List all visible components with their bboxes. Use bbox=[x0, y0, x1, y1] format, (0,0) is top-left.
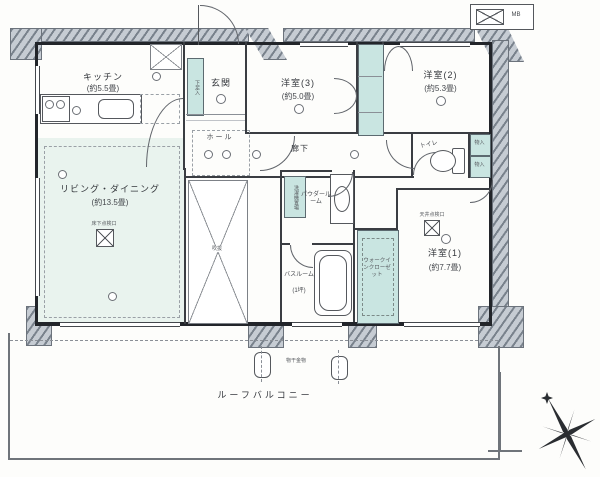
bath-label: バスルーム bbox=[284, 272, 314, 279]
lamp-entrance bbox=[216, 94, 226, 104]
stove-burner-2 bbox=[56, 100, 65, 109]
closet3-door-arc-2 bbox=[334, 96, 357, 114]
toilet-door-arc bbox=[413, 152, 436, 175]
western2-window bbox=[400, 42, 470, 47]
wall-living-right bbox=[184, 168, 186, 324]
floor-plan: MB キッチン (約5.5畳) リビング・ダイニング (約13.5畳) 床下点検… bbox=[0, 0, 600, 477]
ceiling-hatch-label: 天井点検口 bbox=[412, 212, 452, 218]
lamp-living-1 bbox=[108, 292, 117, 301]
washer-label: 洗濯機置場 bbox=[289, 180, 299, 214]
corridor-label: 廊下 bbox=[270, 143, 330, 154]
balcony-rail-bottom bbox=[8, 458, 500, 460]
floor-hatch-icon bbox=[96, 229, 114, 247]
closet3-door-arc-1 bbox=[334, 78, 357, 96]
western1-window bbox=[404, 322, 480, 327]
storage-a-label: 物入 bbox=[471, 140, 488, 146]
living-label: リビング・ダイニング bbox=[50, 182, 170, 195]
laundry-hook-2-line bbox=[338, 350, 339, 384]
compass-icon bbox=[535, 386, 597, 470]
balcony-boundary-dash bbox=[10, 340, 498, 341]
western3-window bbox=[300, 42, 348, 47]
laundry-hook-1-line bbox=[261, 346, 262, 382]
wall-powder-top bbox=[280, 170, 332, 172]
lamp-western1 bbox=[441, 234, 451, 244]
closet2-door-arc-1 bbox=[384, 46, 399, 71]
wall-bath-divider-b bbox=[312, 243, 355, 245]
floor-hatch-label: 床下点検口 bbox=[80, 221, 128, 227]
entrance-step-line bbox=[186, 114, 245, 115]
stove-burner-1 bbox=[45, 100, 54, 109]
lamp-living-2 bbox=[58, 170, 67, 179]
wall-kitchen-right bbox=[183, 42, 185, 170]
balcony-rail-left bbox=[8, 333, 10, 460]
boundary-marker-line bbox=[500, 372, 501, 452]
wall-powder-left bbox=[280, 170, 282, 322]
lamp-western3 bbox=[294, 104, 304, 114]
bath-size: (1坪) bbox=[284, 288, 314, 295]
western2-size: (約5.3畳) bbox=[398, 83, 483, 94]
lamp-corridor-2 bbox=[350, 150, 359, 159]
western3-size: (約5.0畳) bbox=[258, 91, 338, 102]
duct-shaft-icon bbox=[150, 44, 182, 70]
laundry-hook-2 bbox=[331, 356, 348, 380]
lamp-hall-1 bbox=[204, 150, 213, 159]
wic-label: ウォークインクローゼット bbox=[363, 258, 391, 279]
kitchen-label: キッチン bbox=[58, 70, 148, 83]
hall-label: ホール bbox=[196, 134, 244, 142]
lamp-corridor-1 bbox=[252, 150, 261, 159]
lamp-kitchen-1 bbox=[72, 106, 81, 115]
wall-bath-divider-a bbox=[280, 243, 290, 245]
kitchen-sink bbox=[98, 99, 134, 119]
entry-door-leaf bbox=[198, 5, 199, 45]
meter-box-label: MB bbox=[505, 12, 527, 19]
western2-label: 洋室(2) bbox=[398, 68, 483, 81]
living-side-window bbox=[35, 178, 40, 296]
meter-box-icon bbox=[476, 9, 504, 25]
western1-size: (約7.7畳) bbox=[405, 262, 485, 273]
closet-strip bbox=[358, 44, 384, 136]
living-window bbox=[60, 322, 180, 327]
western2-door-arc bbox=[386, 140, 415, 169]
western1-label: 洋室(1) bbox=[405, 246, 485, 259]
entry-door-arc bbox=[200, 5, 239, 44]
outer-wall-band-right bbox=[492, 40, 509, 312]
kitchen-size: (約5.5畳) bbox=[58, 83, 148, 94]
ceiling-hatch-icon bbox=[424, 220, 440, 236]
laundry-hook-1 bbox=[254, 352, 271, 378]
boundary-marker-base bbox=[488, 450, 522, 452]
bath-window bbox=[292, 322, 342, 327]
entrance-step-line-2 bbox=[186, 120, 245, 121]
living-size: (約13.5畳) bbox=[50, 197, 170, 208]
lamp-western2 bbox=[436, 96, 446, 106]
wall-entrance-right bbox=[245, 42, 247, 134]
lamp-kitchen-2 bbox=[152, 72, 161, 81]
storage-b-label: 物入 bbox=[471, 162, 488, 168]
void-label: 吹抜 bbox=[205, 246, 229, 252]
bathtub-inner bbox=[319, 255, 347, 311]
outer-wall-band-top-right bbox=[283, 28, 475, 42]
laundry-hook-label: 物干金物 bbox=[281, 358, 311, 364]
entrance-label: 玄関 bbox=[198, 76, 244, 89]
bath-door-arc bbox=[290, 245, 313, 268]
closet-divider-2 bbox=[358, 112, 382, 113]
pillar-bottom-right bbox=[478, 306, 524, 348]
lamp-hall-2 bbox=[222, 150, 231, 159]
balcony-label: ルーフバルコニー bbox=[200, 388, 330, 401]
western3-label: 洋室(3) bbox=[258, 76, 338, 89]
closet-divider-1 bbox=[358, 76, 382, 77]
